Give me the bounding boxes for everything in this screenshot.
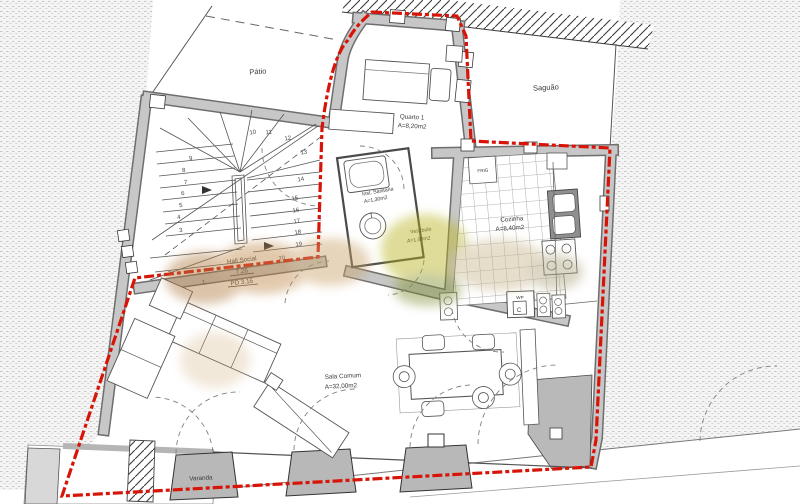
kitchen-appliance xyxy=(547,153,567,169)
stair-steps-right xyxy=(247,172,322,252)
patio-area xyxy=(148,6,338,99)
bedroom-cabinet xyxy=(329,109,394,133)
stair-number: 17 xyxy=(293,218,301,225)
pillar-2 xyxy=(286,449,356,496)
room-area-quarto1: A=8,20m2 xyxy=(397,122,427,131)
chair xyxy=(422,401,445,417)
stair-number: 13 xyxy=(300,149,308,156)
stair-number: 18 xyxy=(294,229,302,236)
room-label-sala-comum: Sala Comum xyxy=(325,372,362,381)
stair-number: 12 xyxy=(284,135,292,142)
stair-arrow-1 xyxy=(202,186,212,194)
stair-number: 10 xyxy=(249,129,257,136)
stair-number: 5 xyxy=(179,203,184,209)
cylinder-label: C xyxy=(517,308,522,314)
stair-number: 16 xyxy=(292,207,300,214)
fridge-label: FRIG xyxy=(477,168,489,174)
right-stipple-area xyxy=(595,0,800,466)
water-heater-label: WP xyxy=(516,295,523,300)
stair-number: 14 xyxy=(297,176,305,183)
pillar-3 xyxy=(400,445,472,492)
chair xyxy=(472,334,495,350)
room-label-patio: Pátio xyxy=(249,66,267,76)
bed xyxy=(363,60,430,104)
pillar-box xyxy=(428,434,444,447)
patio-left-wall-line xyxy=(148,6,212,99)
chair xyxy=(422,335,445,351)
pillow xyxy=(429,68,451,101)
room-area-sala-comum: A=32,00m2 xyxy=(325,382,358,391)
dining-set xyxy=(391,331,523,419)
stair-number: 9 xyxy=(189,156,194,162)
bedside-table xyxy=(446,45,463,62)
stair-number: 6 xyxy=(181,191,186,197)
window-bench xyxy=(520,329,539,425)
room-label-quarto1: Quarto 1 xyxy=(400,113,425,121)
varanda-end-block xyxy=(25,448,60,504)
floor-plan: 1 2 3 4 5 6 7 8 9 10 11 12 13 14 15 16 1… xyxy=(0,0,800,504)
floor-plan-page: 1 2 3 4 5 6 7 8 9 10 11 12 13 14 15 16 1… xyxy=(0,0,800,504)
stair-number: 15 xyxy=(291,195,299,202)
patio-dashed-line xyxy=(206,16,338,40)
stair-number: 3 xyxy=(179,228,184,234)
room-label-varanda: Varanda xyxy=(189,474,213,482)
room-label-saguao: Saguão xyxy=(533,82,559,92)
